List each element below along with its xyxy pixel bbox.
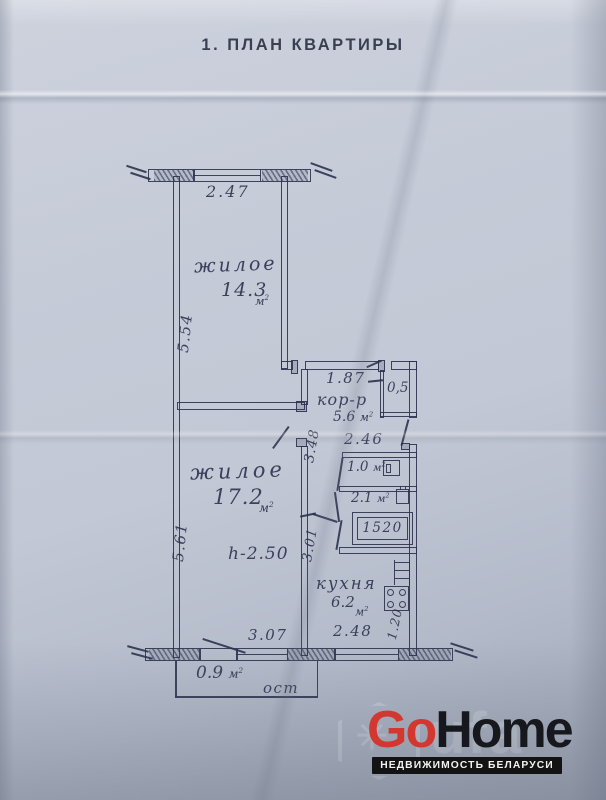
kitchen-area-unit: м2 (355, 606, 368, 618)
wall-bottom-exterior (145, 648, 453, 661)
wc-area: 1.0 м2 (347, 461, 386, 475)
gohome-logo: GoHome (367, 704, 572, 756)
window-top-glass-line (193, 175, 261, 177)
dim-passage-upper: 3.48 (301, 424, 324, 468)
wall-hatch (288, 649, 334, 660)
balcony-label: ост (263, 681, 299, 696)
window-top-tick-left (193, 170, 195, 181)
living1-label: жилое (194, 255, 278, 277)
bathtub-icon: 1520 (352, 512, 413, 545)
scanned-floor-plan-page: 1. ПЛАН КВАРТИРЫ 2.47 жилое 14.3 м2 5.54 (0, 0, 606, 800)
wall-bath-left-lower (335, 520, 342, 550)
dim-top-width: 2.47 (206, 184, 250, 200)
window-tick (334, 649, 336, 660)
balcony-door-jamb (199, 649, 201, 660)
living1-area-unit: м2 (255, 294, 269, 307)
wall-room-divider (177, 402, 305, 410)
closet-area: 0,5 (387, 382, 408, 396)
logo-tagline-bar: НЕДВИЖИМОСТЬ БЕЛАРУСИ (372, 757, 562, 774)
wall-right-exterior-upper (409, 361, 417, 418)
living2-area-unit: м2 (259, 501, 274, 514)
window-bottom1-glass-line (236, 654, 288, 656)
corridor-label: кор-р (317, 392, 367, 408)
dim-living2-height: 5.61 (169, 519, 192, 565)
wall-break-mark (126, 165, 147, 173)
dim-living2-width: 3.07 (248, 628, 287, 643)
kitchen-label: кухня (316, 576, 377, 593)
wall-closet-left (380, 370, 384, 418)
bath-area: 2.1 м2 (351, 492, 390, 506)
brand-go: Go (367, 701, 435, 759)
window-bottom2-glass-line (334, 654, 399, 656)
wall-hatch (149, 649, 199, 660)
dim-living1-height: 5.54 (174, 310, 197, 356)
corridor-area: 5.6 м2 (333, 410, 373, 424)
dim-corridor-width: 2.46 (344, 432, 383, 447)
wall-left-exterior (173, 176, 180, 658)
balcony-outline-left (175, 661, 177, 697)
door-post (291, 360, 298, 374)
wall-kitchen-top (339, 547, 417, 554)
leader-line (312, 513, 337, 523)
washbasin-icon (396, 489, 409, 504)
apartment-plan: 2.47 жилое 14.3 м2 5.54 1.87 0,5 кор-р (0, 0, 606, 800)
wall-bath-left-upper (334, 492, 340, 522)
wall-break-mark (314, 169, 336, 179)
radiator-icon (394, 560, 410, 585)
ceiling-height-note: h-2.50 (228, 546, 289, 563)
door-post (401, 443, 410, 450)
wall-hatch (399, 649, 451, 660)
kitchen-area: 6.2 (331, 595, 355, 610)
door-leaf-living2 (272, 426, 289, 449)
wall-break-mark (454, 649, 477, 658)
toilet-icon (383, 460, 400, 476)
logo-tagline: НЕДВИЖИМОСТЬ БЕЛАРУСИ (380, 760, 554, 771)
wall-corridor-left-stub (301, 369, 308, 405)
door-post (296, 401, 307, 412)
wall-living1-right (281, 176, 288, 369)
living2-area: 17.2 (213, 487, 264, 508)
balcony-outline-right (317, 661, 319, 697)
brand-home: Home (435, 701, 571, 759)
dim-corridor-top: 1.87 (326, 371, 365, 386)
wall-wc-top (342, 452, 417, 458)
door-leaf-entrance (401, 419, 410, 446)
living2-label: жилое (190, 459, 287, 483)
dim-kitchen-width: 2.48 (333, 624, 372, 639)
balcony-area: 0.9 м2 (196, 665, 243, 682)
